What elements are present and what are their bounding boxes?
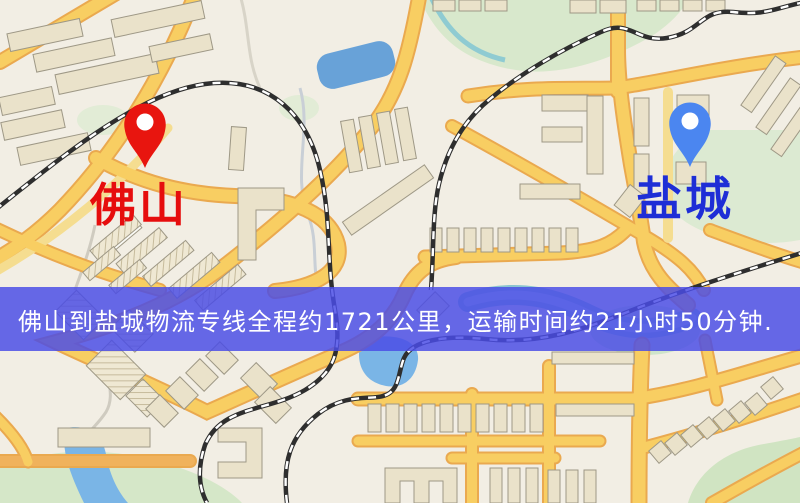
route-info-text: 佛山到盐城物流专线全程约1721公里，运输时间约21小时50分钟. xyxy=(0,302,773,337)
destination-city-label: 盐城 xyxy=(636,176,734,222)
map-image xyxy=(0,0,800,503)
map-screenshot: 佛山 盐城 佛山到盐城物流专线全程约1721公里，运输时间约21小时50分钟. xyxy=(0,0,800,503)
origin-city-label: 佛山 xyxy=(90,182,188,228)
route-info-banner: 佛山到盐城物流专线全程约1721公里，运输时间约21小时50分钟. xyxy=(0,287,800,351)
